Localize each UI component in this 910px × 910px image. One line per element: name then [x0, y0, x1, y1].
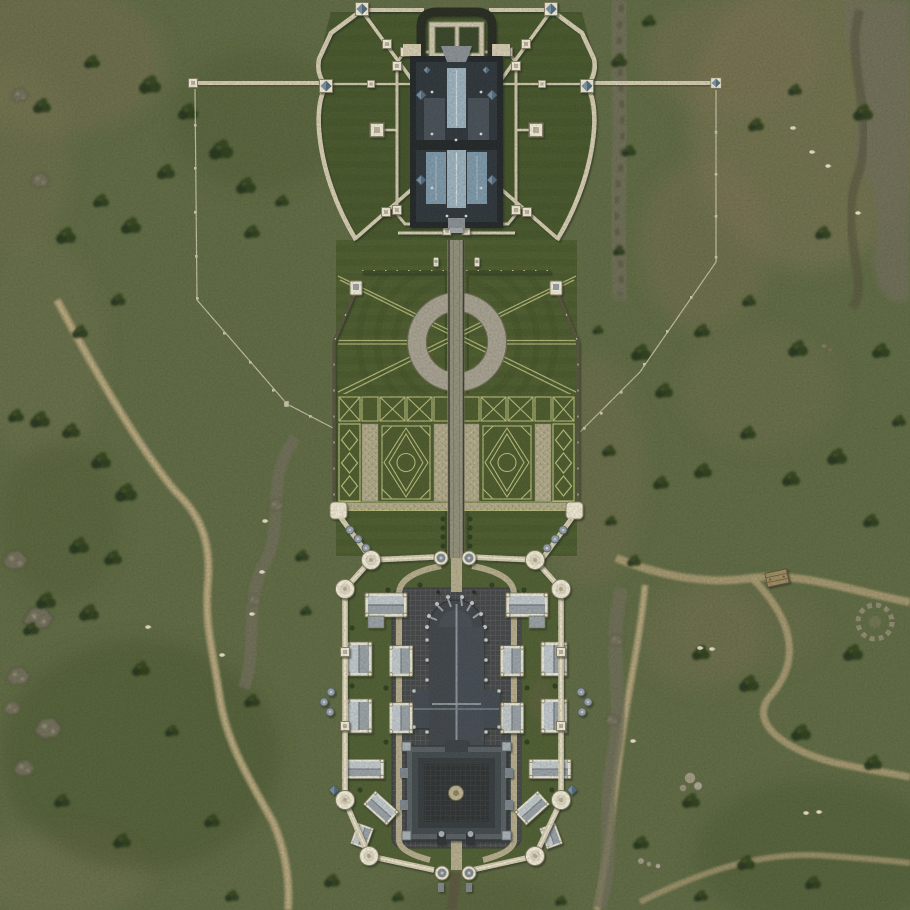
north-fortress[interactable] — [318, 3, 595, 243]
parterre-gate-pier — [566, 502, 583, 519]
central-keep[interactable] — [410, 46, 503, 233]
wall-arm-end-post — [189, 79, 198, 88]
wall-arm-end-turret — [711, 78, 721, 88]
estate-road[interactable] — [448, 232, 465, 558]
map-canvas[interactable] — [0, 0, 910, 910]
game-map-viewport[interactable] — [0, 0, 910, 910]
courtyard-palace[interactable] — [400, 740, 513, 845]
parterre-gate-pier — [330, 502, 347, 519]
palace-compound[interactable] — [320, 518, 592, 892]
